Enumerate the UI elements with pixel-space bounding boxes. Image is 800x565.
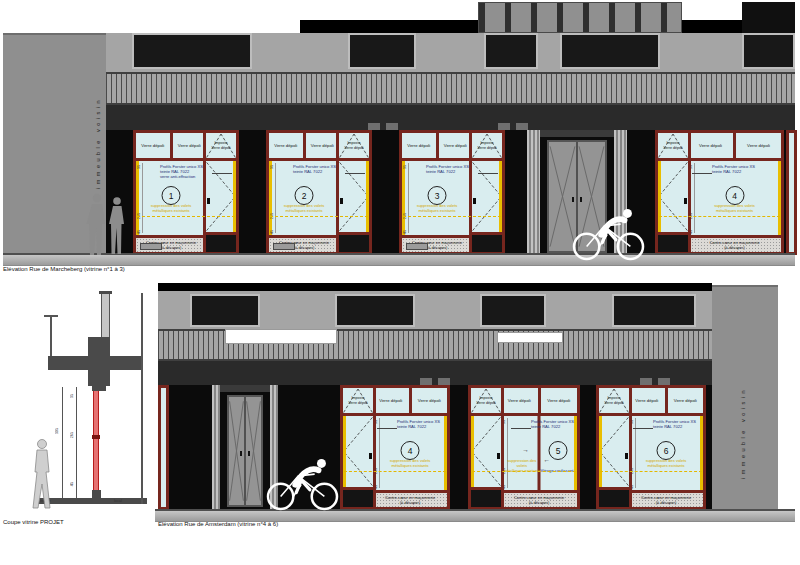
slide-arrow-right-icon: → [522, 446, 529, 453]
door-opening-lines [472, 161, 502, 232]
section-dim-window: 265 [70, 432, 74, 438]
annotation-leader-line [511, 428, 531, 429]
base-label: (à décaper) [529, 500, 549, 505]
shutter-guide-highlight [233, 161, 236, 232]
upper-floor-window [484, 33, 538, 69]
slab-notch [420, 378, 432, 385]
line-element [207, 134, 221, 158]
transom-pane: Verre dépoli [665, 388, 704, 413]
door-leaf [245, 397, 261, 505]
upper-window-dark [742, 2, 795, 33]
transom-label: Verre dépoli [747, 143, 770, 148]
line-element [673, 134, 687, 158]
shutter-guide-highlight [366, 161, 369, 232]
masonry-base: Contre-cœur en maçonnerie (à décaper) [629, 490, 703, 507]
shutter-guide-highlight [658, 161, 661, 232]
transom-label: Verre dépoli [274, 143, 297, 148]
note-line: métalliques existants [690, 208, 779, 213]
line-element [221, 134, 235, 158]
transom-opening-lines [658, 133, 688, 158]
door-glass [658, 161, 688, 232]
dimension-chain-outer [62, 387, 63, 498]
slab-notch [658, 378, 670, 385]
transom-label: Verre dépoli [178, 143, 201, 148]
concrete-downstand [88, 370, 110, 386]
pedestrians-silhouette [84, 193, 132, 257]
shutter-guide-highlight [499, 161, 502, 232]
transom-pane: Verre dépoli [303, 133, 340, 158]
transom-band: Verre dépoli Verre dépoli [269, 133, 339, 161]
door-handle [497, 453, 500, 459]
shop-window-glass: 35 265 45 → ← Vitrage coulissant Profils… [501, 416, 577, 490]
door-opening-lines [206, 161, 236, 232]
section-caption: Coupe vitrine PROJET [3, 519, 64, 525]
door-kick-panel [339, 232, 369, 252]
transom-label: Verre dépoli [547, 398, 570, 403]
door-leaf [229, 397, 245, 505]
line-element [472, 389, 486, 413]
masonry-base: Contre-cœur en maçonnerie (à décaper) [136, 235, 206, 252]
balcony-slab-shadow-band [106, 105, 795, 130]
line-element [358, 389, 372, 413]
dimension-line [507, 418, 508, 488]
door-glass [339, 161, 369, 232]
neighbor-building-wall: immeuble voisin [712, 285, 778, 509]
line-element [659, 162, 688, 196]
shutter-removal-dashed-line [137, 216, 235, 217]
note-line: métalliques existants [271, 208, 337, 213]
transom-pane: Verre dépoli [629, 388, 665, 413]
transom-label: Verre dépoli [311, 143, 334, 148]
transom-pane: Verre dépoli [688, 133, 733, 158]
transom-label: Verre dépoli [418, 398, 441, 403]
upper-floor-window [612, 294, 696, 327]
line-element [486, 389, 500, 413]
transom-pane: Verre dépoli [409, 388, 448, 413]
bottom-elevation-caption: Elévation Rue de Amsterdam (vitrine n°4 … [158, 521, 278, 527]
profile-annotation: Profils Forster unico XS teinte RAL 7022 [397, 420, 449, 430]
base-label: (à décaper) [400, 500, 420, 505]
shutter-guide-highlight [136, 161, 139, 235]
line-element [354, 134, 368, 158]
masonry-base: Contre-cœur en maçonnerie (à décaper) [501, 490, 577, 507]
line-element [340, 134, 354, 158]
upper-floor-window [560, 33, 660, 69]
transom-band: Verre dépoli Verre dépoli [501, 388, 577, 416]
door-transom: Imposte Verre dépoli [343, 388, 373, 416]
transom-opening-lines [206, 133, 236, 158]
transom-pane: Verre dépoli [269, 133, 303, 158]
window-area: Verre dépoli Verre dépoli 35 265 45 → ← … [269, 133, 339, 252]
concrete-upstand [88, 337, 110, 356]
g-element [87, 194, 125, 255]
door-transom: Imposte Verre dépoli [471, 388, 501, 416]
shop-door: Imposte Verre dépoli [343, 388, 376, 507]
line-element [207, 197, 236, 231]
circle-element [623, 209, 632, 218]
path-element [87, 204, 106, 255]
balcony-slab-shadow-band [158, 361, 712, 385]
transom-pane: Verre dépoli [136, 133, 170, 158]
sign-patch [225, 329, 337, 344]
transom-pane: Verre dépoli [733, 133, 781, 158]
masonry-base: Contre-cœur en maçonnerie (à décaper) [402, 235, 472, 252]
line-element [473, 162, 502, 196]
door-opening-lines [658, 161, 688, 232]
slab-notch [498, 123, 510, 130]
door-glass [471, 416, 501, 487]
door-transom: Imposte Verre dépoli [658, 133, 688, 161]
interior-wall-line [141, 293, 143, 504]
cyclist-silhouette [568, 194, 650, 262]
storefront-bay: Verre dépoli Verre dépoli 35 265 45 → ← … [655, 130, 784, 255]
door-kick-panel [472, 232, 502, 252]
upper-floor-window [348, 33, 416, 69]
door-opening-lines [343, 416, 373, 487]
door-kick-panel [471, 487, 501, 507]
note-line: suppression des volets [503, 458, 541, 468]
masonry-base: Contre-cœur en maçonnerie (à décaper) [373, 490, 447, 507]
door-glass [472, 161, 502, 232]
base-label: (à décaper) [724, 245, 744, 250]
door-transom: Imposte Verre dépoli [206, 133, 236, 161]
circle-element [113, 197, 121, 205]
annotation-leader-line [692, 173, 712, 174]
line-element [344, 389, 358, 413]
base-label: (à décaper) [294, 245, 314, 250]
transom-label: Verre dépoli [444, 143, 467, 148]
balcony-edge-tick [44, 315, 58, 317]
door-glass [599, 416, 629, 487]
door-handle [340, 198, 343, 204]
svg-element [262, 444, 344, 512]
door-handle [248, 451, 250, 456]
transom-label: Verre dépoli [508, 398, 531, 403]
dimension-transom: 35 [270, 165, 274, 169]
circle-element [38, 440, 47, 449]
shutter-removal-note: suppression des volets métalliques exist… [375, 458, 445, 468]
dimension-base: 45 [403, 230, 407, 234]
door-opening-lines [599, 416, 629, 487]
dimension-transom: 35 [403, 165, 407, 169]
storefront-bay: Verre dépoli Verre dépoli 35 265 45 → ← … [468, 385, 580, 510]
door-transom: Imposte Verre dépoli [472, 133, 502, 161]
transom-band: Verre dépoli Verre dépoli [402, 133, 472, 161]
door-glass [206, 161, 236, 232]
shutter-guide-highlight [471, 416, 474, 487]
transom-pane: Verre dépoli [538, 388, 578, 413]
line-element [659, 134, 673, 158]
entrance-lintel [540, 130, 614, 137]
shop-door: Imposte Verre dépoli [599, 388, 632, 507]
entrance-double-door [227, 395, 263, 507]
transom-band: Verre dépoli Verre dépoli [629, 388, 703, 416]
storefront-bay-fragment [158, 385, 169, 510]
shutter-removal-dashed-line [472, 471, 576, 472]
shop-window-glass: 35 265 45 → ← Vitrage coulissant Profils… [629, 416, 703, 490]
glazing-handle [92, 435, 100, 439]
profile-annotation: Profils Forster unico XS teinte RAL 7022 [653, 420, 705, 430]
note-line: métalliques existants [375, 463, 445, 468]
line-element [614, 389, 628, 413]
transom-opening-lines [343, 388, 373, 413]
transom-band: Verre dépoli Verre dépoli [136, 133, 206, 161]
dimension-line [408, 163, 409, 233]
transom-label: Verre dépoli [635, 398, 658, 403]
section-dim-base: 45 [70, 482, 74, 486]
dimension-chain-inner [76, 387, 77, 498]
neighbor-building-label: immeuble voisin [95, 97, 101, 189]
path-element [109, 206, 124, 254]
shop-window-glass: 35 265 45 → ← Vitrage coulissant Profils… [136, 161, 206, 235]
frame-sill [92, 490, 101, 498]
door-opening-lines [471, 416, 501, 487]
window-area: Verre dépoli Verre dépoli 35 265 45 → ← … [629, 388, 703, 507]
transom-pane: Verre dépoli [373, 388, 409, 413]
line-element [472, 417, 501, 451]
base-label: (à décaper) [427, 245, 447, 250]
slab-notch [438, 378, 450, 385]
note-line: métalliques existants [138, 208, 204, 213]
svg-element [568, 194, 650, 262]
shutter-removal-note: suppression des volets métalliques exist… [138, 203, 204, 213]
slab-notch [386, 123, 398, 130]
line-element [340, 197, 369, 231]
slab-notch [640, 378, 652, 385]
note-line: métalliques existants [631, 463, 701, 468]
door-handle [207, 198, 210, 204]
bay-number: 5 [549, 441, 568, 460]
transom-pane: Verre dépoli [436, 133, 473, 158]
vent-grille [273, 243, 295, 250]
entrance-lintel [220, 385, 270, 392]
dimension-line [142, 163, 143, 233]
upper-floor-window [190, 294, 260, 327]
top-elevation-caption: Elévation Rue de Marcheberg (vitrine n°1… [3, 266, 125, 272]
transom-pane: Verre dépoli [170, 133, 207, 158]
section-dim-total: 305 [55, 428, 59, 434]
door-handle [625, 453, 628, 459]
window-area: Verre dépoli Verre dépoli 35 265 45 → ← … [688, 133, 781, 252]
transom-label: Verre dépoli [141, 143, 164, 148]
window-area: Verre dépoli Verre dépoli 35 265 45 → ← … [402, 133, 472, 252]
storefront-bay: Verre dépoli Verre dépoli 35 265 45 → ← … [340, 385, 450, 510]
shop-window-glass: 35 265 45 → ← Vitrage coulissant Profils… [269, 161, 339, 235]
slide-arrow-left-icon: ← [544, 456, 551, 463]
dimension-base: 45 [270, 230, 274, 234]
shutter-removal-note: suppression des volets métalliques exist… [271, 203, 337, 213]
upper-floor-window [335, 294, 415, 327]
dimension-base: 45 [137, 230, 141, 234]
door-glass [343, 416, 373, 487]
window-area: Verre dépoli Verre dépoli 35 265 45 → ← … [136, 133, 206, 252]
svg-element [84, 193, 132, 257]
g-element [268, 469, 337, 509]
slab-notch [516, 123, 528, 130]
masonry-base: Contre-cœur en maçonnerie (à décaper) [269, 235, 339, 252]
upper-floor-window [132, 33, 252, 69]
door-kick-panel [206, 232, 236, 252]
door-handle [240, 451, 242, 456]
balcony-edge-line [50, 316, 52, 357]
upper-floor-window [742, 33, 795, 69]
line-element [344, 417, 373, 451]
shutter-removal-dashed-line [659, 216, 780, 217]
vent-grille [140, 243, 162, 250]
entrance-pilaster [527, 130, 540, 255]
storefront-bay: Verre dépoli Verre dépoli 35 265 45 → ← … [266, 130, 372, 255]
g-element [33, 440, 50, 509]
line-element [473, 197, 502, 231]
walking-person-silhouette [26, 438, 62, 514]
transom-pane: Verre dépoli [402, 133, 436, 158]
door-kick-panel [658, 232, 688, 252]
profile-annotation: Profils Forster unico XS teinte RAL 7022 [712, 165, 764, 175]
line-element [600, 389, 614, 413]
shop-door: Imposte Verre dépoli [469, 133, 502, 252]
path-element [33, 450, 50, 508]
circle-element [574, 234, 599, 259]
door-handle [473, 198, 476, 204]
transom-label: Verre dépoli [407, 143, 430, 148]
dimension-transom: 35 [137, 165, 141, 169]
transom-opening-lines [599, 388, 629, 413]
upper-window-dark-band [158, 283, 712, 291]
door-kick-panel [343, 487, 373, 507]
window-area: Verre dépoli Verre dépoli 35 265 45 → ← … [373, 388, 447, 507]
interior-label: local [114, 499, 122, 503]
annotation-leader-line [377, 428, 397, 429]
shop-window-glass: 35 265 45 → ← Vitrage coulissant Profils… [402, 161, 472, 235]
shutter-guide-highlight [778, 161, 781, 235]
line-element [473, 134, 487, 158]
shop-door: Imposte Verre dépoli [658, 133, 691, 252]
shutter-removal-note: suppression des volets métalliques exist… [631, 458, 701, 468]
shutter-removal-dashed-line [344, 471, 446, 472]
slab-notch [368, 123, 380, 130]
g-element [574, 219, 643, 259]
shutter-removal-dashed-line [270, 216, 368, 217]
sign-patch [497, 332, 563, 343]
shop-window-glass: 35 265 45 → ← Vitrage coulissant Profils… [688, 161, 781, 235]
window-area: Verre dépoli Verre dépoli 35 265 45 → ← … [501, 388, 577, 507]
shutter-guide-highlight [402, 161, 405, 235]
cyclist-silhouette [262, 444, 344, 512]
line-element [487, 134, 501, 158]
transom-band: Verre dépoli Verre dépoli [373, 388, 447, 416]
svg-element [26, 438, 62, 514]
storefront-bay: Verre dépoli Verre dépoli 35 265 45 → ← … [596, 385, 706, 510]
facade-elevation-drawing: immeuble voisin Verre dépoli Verre dépol… [0, 0, 800, 565]
upper-floor-window [480, 294, 546, 327]
door-handle [369, 453, 372, 459]
upper-window-slatted [478, 2, 682, 33]
concrete-slab [48, 356, 143, 370]
storefront-bay: Verre dépoli Verre dépoli 35 265 45 → ← … [399, 130, 505, 255]
transom-opening-lines [471, 388, 501, 413]
shop-door: Imposte Verre dépoli [471, 388, 504, 507]
circle-element [317, 459, 326, 468]
circle-element [93, 194, 101, 202]
vent-grille [406, 243, 428, 250]
line-element [207, 162, 236, 196]
dimension-line [275, 163, 276, 233]
note-line: métalliques existants [404, 208, 470, 213]
annotation-line: teinte RAL 7022 [653, 425, 705, 430]
base-label: (à décaper) [656, 500, 676, 505]
transom-label: Verre dépoli [674, 398, 697, 403]
masonry-base: Contre-cœur en maçonnerie (à décaper) [688, 235, 781, 252]
railing-post-cap [99, 291, 112, 294]
transom-label: Verre dépoli [699, 143, 722, 148]
circle-element [618, 234, 643, 259]
door-kick-panel [599, 487, 629, 507]
annotation-line: teinte RAL 7022 [397, 425, 449, 430]
new-glazing-section [93, 391, 99, 490]
transom-label: Verre dépoli [379, 398, 402, 403]
profile-annotation: Profils Forster unico XS teinte RAL 7022 [531, 420, 583, 430]
section-dim-transom: 35 [70, 394, 74, 398]
transom-pane: Verre dépoli [501, 388, 538, 413]
shop-door: Imposte Verre dépoli [203, 133, 236, 252]
balcony-railing [106, 72, 795, 105]
door-transom: Imposte Verre dépoli [599, 388, 629, 416]
storefront-bay: Verre dépoli Verre dépoli 35 265 45 → ← … [133, 130, 239, 255]
entrance-pilaster [212, 385, 220, 509]
transom-band: Verre dépoli Verre dépoli [688, 133, 781, 161]
annotation-line: teinte RAL 7022 [712, 170, 764, 175]
shop-door: Imposte Verre dépoli [336, 133, 369, 252]
transom-opening-lines [472, 133, 502, 158]
circle-element [268, 484, 293, 509]
shutter-guide-highlight [599, 416, 602, 487]
shutter-removal-note: suppression des volets métalliques exist… [404, 203, 470, 213]
shutter-removal-dashed-line [403, 216, 501, 217]
shutter-removal-dashed-line [600, 471, 702, 472]
annotation-leader-line [633, 428, 653, 429]
shutter-guide-highlight [269, 161, 272, 235]
line-element [600, 417, 629, 451]
circle-element [312, 484, 337, 509]
line-element [340, 162, 369, 196]
door-handle [684, 198, 687, 204]
shutter-removal-note: suppression des volets métalliques exist… [690, 203, 779, 213]
annotation-line: teinte RAL 7022 [531, 425, 583, 430]
door-transom: Imposte Verre dépoli [339, 133, 369, 161]
transom-opening-lines [339, 133, 369, 158]
storefront-bay-fragment [786, 130, 797, 255]
base-label: (à décaper) [161, 245, 181, 250]
railing-post-section [101, 293, 110, 339]
door-opening-lines [339, 161, 369, 232]
neighbor-building-label: immeuble voisin [740, 387, 746, 479]
shop-window-glass: 35 265 45 → ← Vitrage coulissant Profils… [373, 416, 447, 490]
